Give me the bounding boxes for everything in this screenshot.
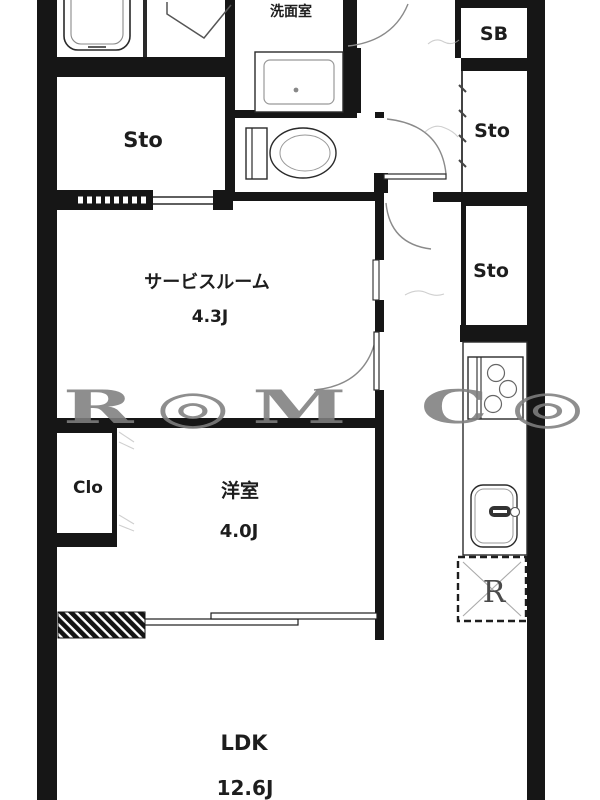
wall-corridor-seg2 [375,178,384,260]
sto-left-door-lines [153,197,213,204]
wall-corridor-seg3 [375,300,384,332]
wall-sto2-bottom [460,325,527,342]
room-size-western-room: 4.0J [220,521,259,542]
wall-sto1-bottom [461,192,527,206]
wall-washroom-left [225,0,235,192]
room-label-storage-top-left: Sto [123,128,163,152]
toilet-door-arc [387,119,446,174]
bath-door-fold-icon [167,2,231,38]
floorplan-image: 洗面室 Sto SB Sto Sto サービスルーム 4.3J Clo 洋室 4… [0,0,600,800]
bathtub-icon [64,0,130,50]
room-label-shoe-box: SB [480,23,508,45]
room-label-storage-right-1: Sto [474,120,510,142]
room-size-service-room: 4.3J [192,307,228,327]
toilet-door-leaf [384,174,446,179]
wall-corridor-seg1 [375,112,384,118]
room-label-closet: Clo [73,478,103,498]
wall-sb-left [455,0,461,58]
corridor-partition-thin [373,260,379,300]
wall-exterior-left [37,0,57,800]
wall-closet-right [112,428,117,538]
room-size-ldk: 12.6J [217,776,274,800]
sto1-louver-line [459,71,466,192]
watermark-text: R◎M C◎◎ [63,381,600,435]
washbasin-icon [255,52,343,112]
floorplan-svg: 洗面室 Sto SB Sto Sto サービスルーム 4.3J Clo 洋室 4… [0,0,600,800]
sliding-door-icon [140,613,377,625]
wall-sb-bottom [461,58,527,71]
room-label-ldk: LDK [220,731,268,755]
room-label-western-room: 洋室 [221,479,259,502]
room-label-service-room: サービスルーム [144,272,269,293]
wall-closet-under [57,538,117,547]
wall-closet-bottom [57,533,117,538]
hall-door-arc [386,203,431,249]
wall-service-top-mid [213,190,233,210]
toilet-icon [246,128,336,179]
shutter-box-hatch [58,612,145,638]
label-refrigerator-space: R [483,575,507,610]
wall-toilet-bottom [230,192,384,201]
wall-sto2-left [461,206,466,326]
sink-icon [471,485,520,547]
wall-bath-bottom [57,57,233,77]
wall-washroom-right-lower [343,48,361,113]
room-label-washroom: 洗面室 [270,3,312,20]
wall-top-right [455,0,527,8]
wall-hall-band [433,192,462,202]
wall-bath-partition [143,0,147,57]
room-label-storage-right-2: Sto [473,260,509,282]
